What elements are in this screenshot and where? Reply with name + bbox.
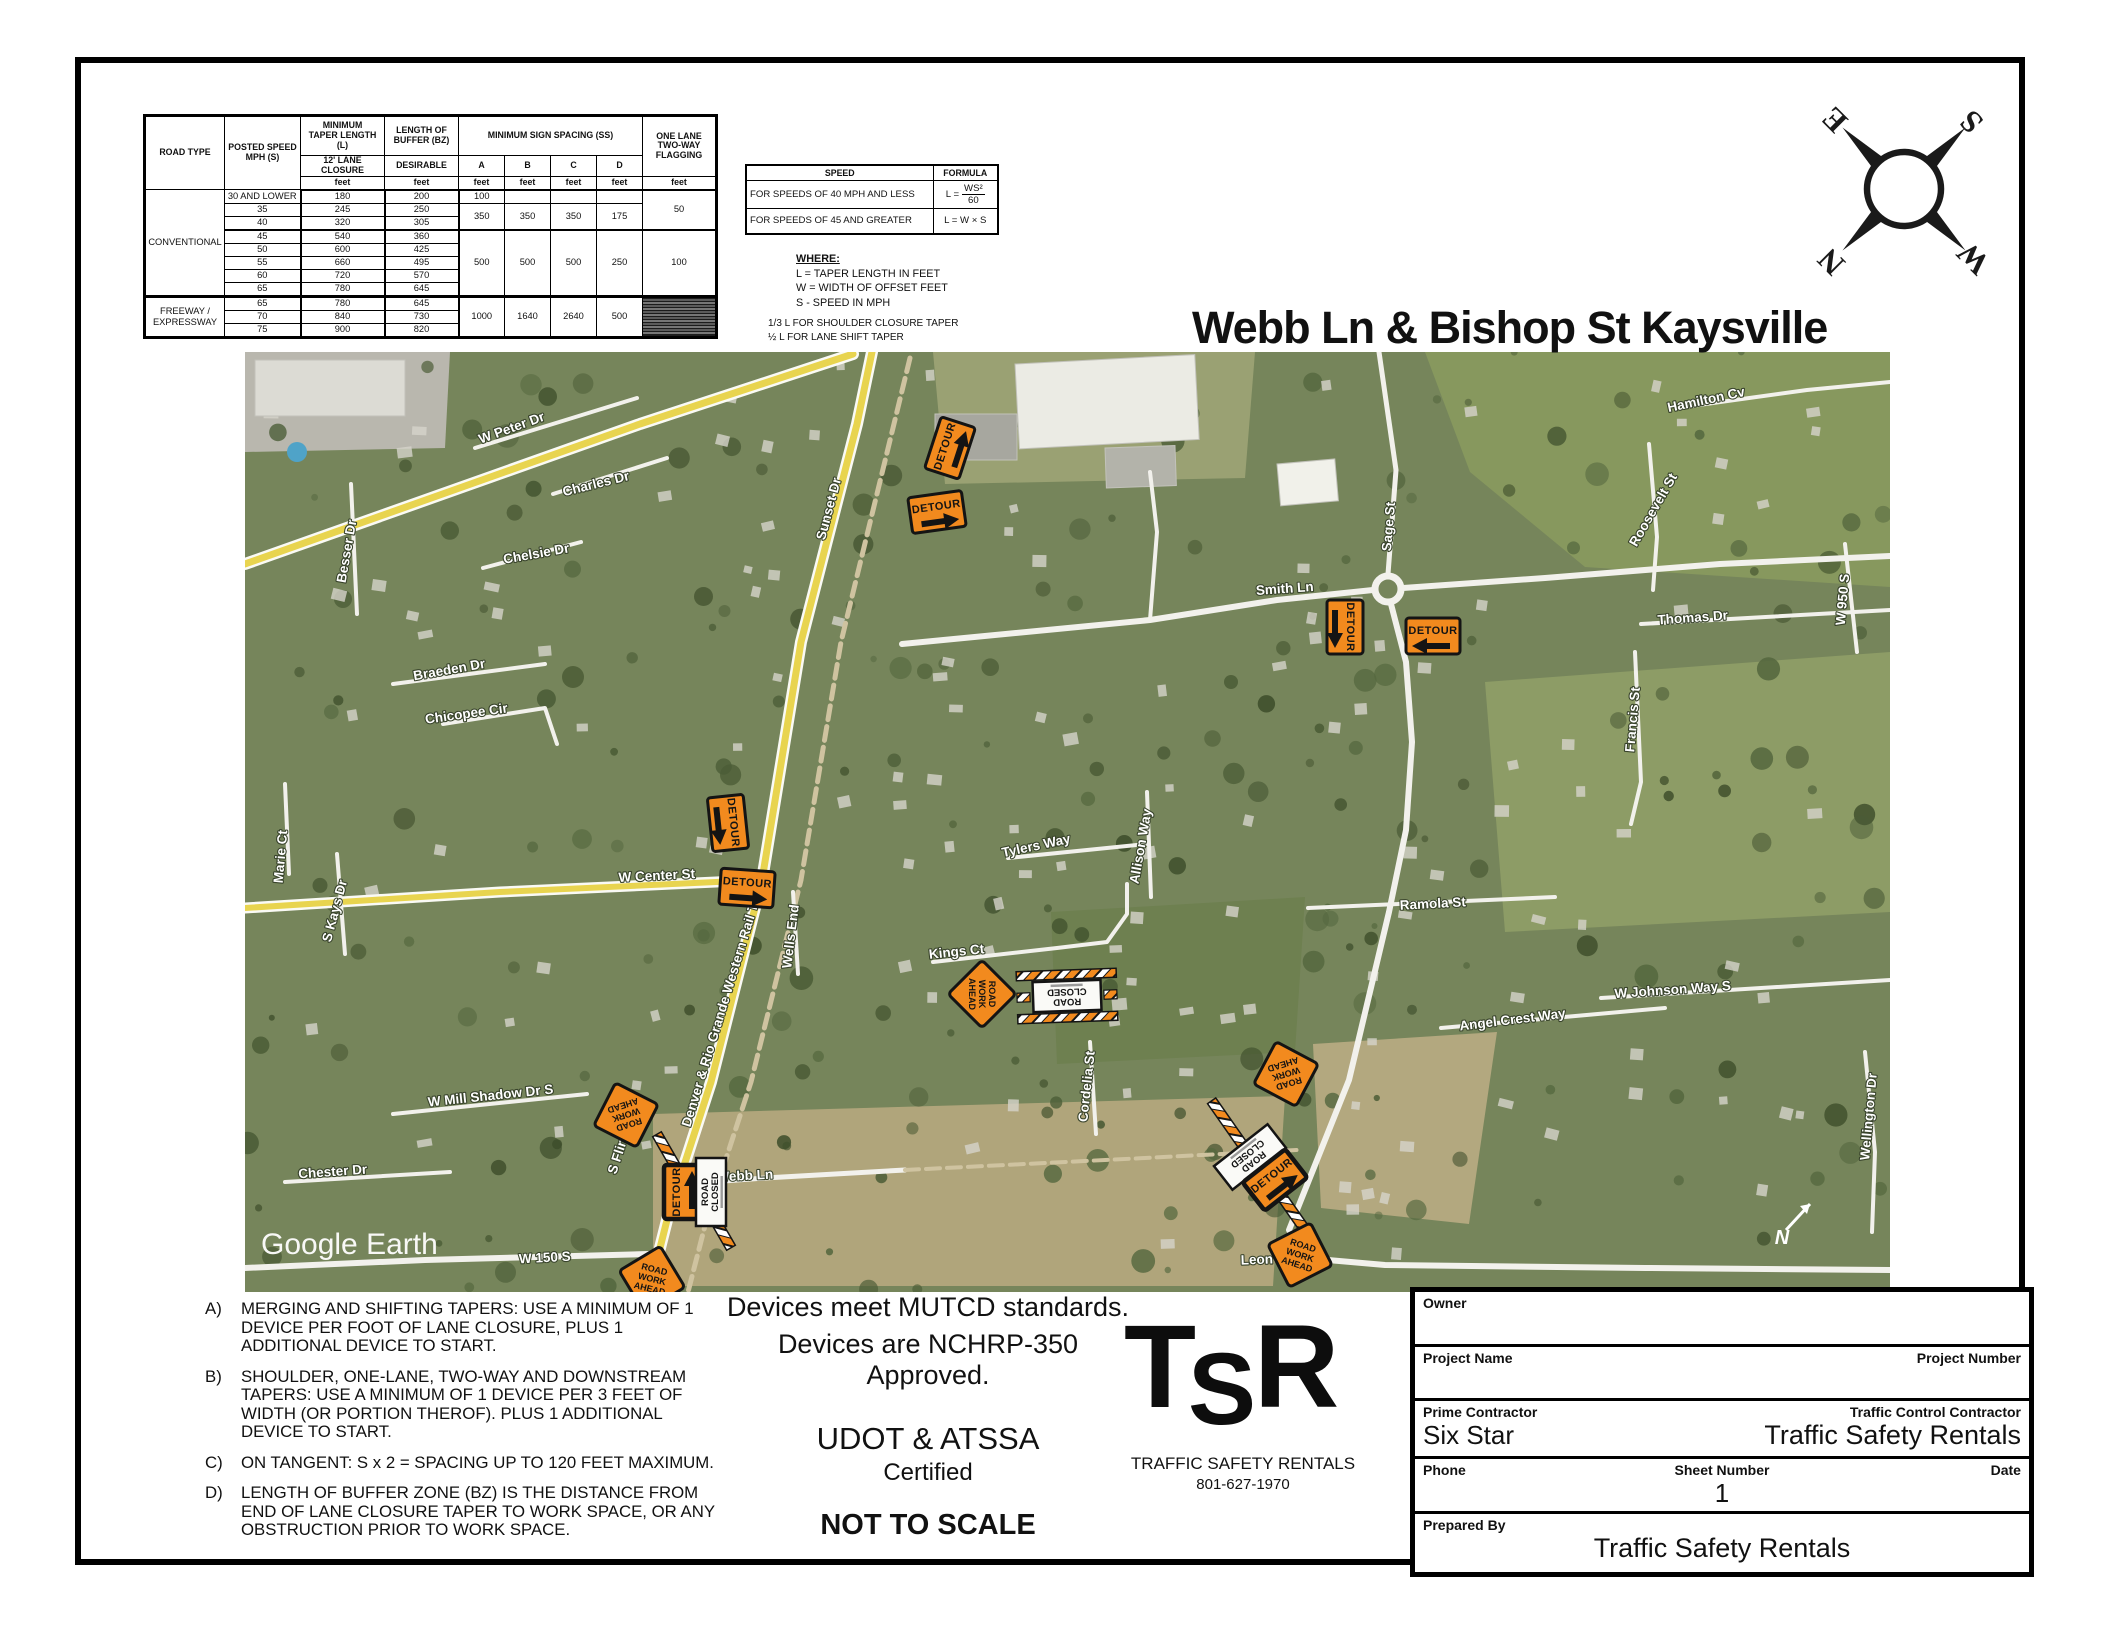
house (1756, 1184, 1768, 1197)
house (837, 795, 851, 809)
tree (875, 1005, 891, 1021)
not-to-scale: NOT TO SCALE (718, 1509, 1138, 1542)
tree (1319, 583, 1328, 592)
taper-cell: 250 (597, 230, 643, 297)
tree (1204, 730, 1221, 747)
tree (491, 1160, 506, 1175)
taper-cell: 720 (301, 269, 385, 282)
tree (909, 1087, 928, 1106)
house (1757, 992, 1770, 1004)
house (1225, 906, 1239, 918)
tree (1458, 779, 1469, 790)
taper-cell: 500 (459, 230, 505, 297)
house (631, 1080, 641, 1090)
taper-cell: 600 (301, 243, 385, 256)
svg-text:DETOUR: DETOUR (1408, 625, 1457, 637)
sign-rc: ROADCLOSED (696, 1158, 726, 1226)
tree (351, 944, 367, 960)
sign-north: N (1775, 1204, 1810, 1249)
formula-numerator: WS² (962, 183, 985, 195)
house (1562, 739, 1575, 750)
tree (1757, 1232, 1771, 1246)
tree (508, 961, 520, 973)
tree (1842, 513, 1860, 531)
taper-cell: 350 (551, 203, 597, 230)
taper-cell: 780 (301, 296, 385, 310)
taper-cell: 100 (459, 190, 505, 204)
google-earth-watermark: Google Earth (261, 1228, 438, 1261)
svg-text:DETOUR: DETOUR (671, 1167, 683, 1216)
house (1578, 920, 1587, 930)
taper-cell: 175 (597, 203, 643, 230)
house (893, 772, 904, 783)
tree (458, 1007, 477, 1026)
house (1806, 407, 1820, 418)
house (434, 844, 447, 856)
tree (399, 460, 412, 473)
date-label: Date (1991, 1462, 2021, 1478)
house (1009, 825, 1019, 834)
house (809, 430, 820, 441)
prepared-by-label: Prepared By (1423, 1517, 2021, 1533)
taper-cell: feet (505, 176, 551, 190)
taper-cell: 12' LANE CLOSURE (301, 156, 385, 177)
taper-cell: 55 (225, 256, 301, 269)
taper-cell (597, 190, 643, 204)
tree (1315, 724, 1325, 734)
tree (698, 929, 710, 941)
road (902, 590, 1373, 644)
tree (1452, 1152, 1467, 1167)
house (1361, 1188, 1375, 1200)
tree (507, 505, 523, 521)
tree (981, 658, 999, 676)
tree (1695, 430, 1705, 440)
house (371, 579, 386, 592)
taper-note: ½ L FOR LANE SHIFT TAPER (768, 331, 958, 345)
tree (887, 754, 901, 768)
note-item: C)ON TANGENT: S x 2 = SPACING UP TO 120 … (205, 1454, 720, 1473)
house (331, 588, 347, 602)
map-area (653, 1096, 1285, 1286)
taper-cell: 35 (225, 203, 301, 216)
page-title: Webb Ln & Bishop St Kaysville (1192, 302, 1827, 354)
tree (1467, 636, 1477, 646)
house (1346, 1204, 1359, 1214)
tree (949, 820, 957, 828)
tree (1090, 762, 1104, 776)
tree (1585, 462, 1609, 486)
house (761, 440, 773, 454)
tree (294, 667, 304, 677)
tree (1157, 746, 1170, 759)
tree (1044, 1165, 1062, 1183)
taper-cell: 350 (459, 203, 505, 230)
map-area (1485, 652, 1890, 932)
tree (610, 748, 618, 756)
sign-detour: DETOUR (719, 868, 775, 908)
house (1498, 1098, 1514, 1110)
taper-cell: 350 (505, 203, 551, 230)
taper-cell: 500 (551, 230, 597, 297)
mutcd-line: Devices meet MUTCD standards. (718, 1292, 1138, 1323)
road (475, 398, 637, 448)
tree (1815, 892, 1826, 903)
tree (1546, 1085, 1556, 1095)
tree (694, 587, 713, 606)
house (1576, 786, 1585, 797)
tree (1354, 669, 1377, 692)
tree (947, 1029, 954, 1036)
tree (1731, 540, 1748, 557)
taper-cell (551, 190, 597, 204)
tree (984, 741, 990, 747)
tree (1372, 923, 1378, 929)
where-line: L = TAPER LENGTH IN FEET (796, 267, 958, 282)
tree (1660, 776, 1669, 785)
sign-detour: DETOUR (908, 490, 966, 533)
taper-cell: feet (301, 176, 385, 190)
title-block-contractor-row: Prime Contractor Six Star Traffic Contro… (1415, 1398, 2029, 1456)
tree (1864, 888, 1885, 909)
tree (772, 1011, 792, 1031)
tree (1305, 907, 1329, 931)
taper-cell: 1640 (505, 296, 551, 337)
tree (1374, 664, 1396, 686)
tree (245, 1132, 259, 1154)
taper-cell: feet (551, 176, 597, 190)
tree (1165, 1267, 1171, 1273)
tree (756, 464, 768, 476)
svg-text:WORK: WORK (977, 980, 987, 1009)
svg-text:CLOSED: CLOSED (1047, 985, 1087, 997)
house (743, 565, 753, 574)
street-label: Chelsie Dr (502, 540, 571, 566)
tree (1374, 1095, 1380, 1101)
house (696, 837, 708, 849)
sheet-number-label: Sheet Number (1622, 1462, 1821, 1478)
title-block-project-row: Project Name Project Number (1415, 1344, 2029, 1398)
house (1464, 406, 1477, 417)
svg-text:DETOUR: DETOUR (1344, 602, 1356, 651)
street-label: Ramola St (1399, 894, 1466, 912)
tree (255, 1204, 262, 1211)
house (1712, 513, 1724, 525)
taper-cell (643, 296, 717, 337)
building (1105, 446, 1176, 488)
street-label: Braeden Dr (412, 656, 487, 684)
note-item: D)LENGTH OF BUFFER ZONE (BZ) IS THE DIST… (205, 1484, 720, 1540)
taper-cell: 100 (643, 230, 717, 297)
tree (252, 1037, 269, 1054)
house (1328, 722, 1341, 734)
tree (840, 767, 849, 776)
title-block-owner-row: Owner (1415, 1292, 2029, 1344)
traffic-control-contractor-value: Traffic Safety Rentals (1764, 1420, 2021, 1451)
house (1179, 1068, 1193, 1076)
tree (709, 1248, 724, 1263)
taper-cell: 540 (301, 230, 385, 244)
building (1277, 459, 1338, 506)
note-text: ON TANGENT: S x 2 = SPACING UP TO 120 FE… (241, 1454, 720, 1473)
house (1719, 1096, 1728, 1105)
tree (1547, 427, 1566, 446)
tsr-letter-r: R (1254, 1308, 1339, 1426)
house (944, 841, 954, 853)
prime-contractor-label: Prime Contractor (1423, 1404, 1537, 1420)
house (1309, 632, 1322, 645)
taper-cell: 40 (225, 216, 301, 230)
tree (1614, 392, 1631, 409)
tree (1011, 1057, 1019, 1065)
taper-cell: 50 (225, 243, 301, 256)
tsr-logo-block: T S R TRAFFIC SAFETY RENTALS 801-627-197… (1118, 1308, 1368, 1493)
house (1617, 829, 1631, 837)
tree (1303, 373, 1322, 392)
tree (890, 657, 912, 679)
svg-text:N: N (1775, 1227, 1790, 1249)
tree (526, 481, 542, 497)
tree (441, 521, 459, 539)
taper-cell: 320 (301, 216, 385, 230)
tree (669, 447, 690, 468)
house (893, 800, 907, 810)
house (1677, 419, 1687, 426)
taper-cell: ONE LANETWO-WAYFLAGGING (643, 116, 717, 177)
cert-org: UDOT & ATSSA (718, 1421, 1138, 1457)
tree (1081, 792, 1095, 806)
formula-row1-speed: FOR SPEEDS OF 40 MPH AND LESS (746, 181, 933, 209)
satellite-map: W Peter DrCharles DrChelsie DrBesser DrB… (245, 352, 1890, 1292)
tsr-logo: T S R (1118, 1308, 1368, 1448)
tree (1712, 771, 1721, 780)
house (772, 673, 782, 682)
formula-lhs: L = (946, 189, 959, 200)
house (1272, 661, 1287, 671)
tree (1752, 833, 1771, 852)
formula-header-speed: SPEED (746, 165, 933, 181)
tree (1306, 759, 1314, 767)
house (1339, 1181, 1352, 1193)
house (761, 520, 775, 531)
tsr-company-name: TRAFFIC SAFETY RENTALS (1118, 1454, 1368, 1474)
tree (709, 624, 716, 631)
tree (1303, 951, 1325, 973)
compass-s: S (1953, 103, 1990, 140)
house (933, 672, 948, 681)
house (484, 582, 500, 593)
tree (333, 695, 343, 705)
map-canvas: W Peter DrCharles DrChelsie DrBesser DrB… (245, 352, 1890, 1292)
tree (480, 604, 489, 613)
house (1008, 1099, 1019, 1111)
taper-cell: 570 (385, 269, 459, 282)
tree (716, 758, 732, 774)
house (1157, 684, 1167, 697)
house (927, 992, 937, 1003)
house (1243, 1004, 1256, 1015)
house (898, 960, 912, 973)
taper-cell: 60 (225, 269, 301, 282)
taper-cell: LENGTH OFBUFFER (BZ) (385, 116, 459, 156)
tree (1534, 1199, 1542, 1207)
house (1544, 1127, 1559, 1140)
taper-cell: 65 (225, 282, 301, 296)
tree (1044, 904, 1052, 912)
sign-detour: DETOUR (707, 794, 748, 851)
tree (464, 1282, 474, 1292)
tree (1669, 1089, 1684, 1104)
taper-cell: 30 AND LOWER (225, 190, 301, 204)
house (1391, 1247, 1402, 1260)
house (1400, 1141, 1415, 1152)
map-area (1313, 1032, 1497, 1224)
tree (777, 1135, 791, 1149)
tree (404, 936, 414, 946)
tree (1850, 816, 1874, 840)
street-label: Charles Dr (561, 468, 632, 499)
tree (773, 696, 785, 708)
house (1628, 1087, 1643, 1100)
house (903, 858, 914, 869)
svg-text:CLOSED: CLOSED (710, 1172, 721, 1212)
house (665, 1066, 678, 1074)
street-label: W Johnson Way S (1614, 978, 1731, 1001)
taper-cell: 1000 (459, 296, 505, 337)
house (751, 586, 762, 598)
street-label: Sage St (1379, 501, 1398, 552)
house (715, 434, 730, 447)
tree (600, 1278, 616, 1292)
speed-formula-table: SPEED FORMULA FOR SPEEDS OF 40 MPH AND L… (745, 164, 999, 235)
formula-row2-formula: L = W × S (933, 209, 998, 234)
tree (1116, 835, 1133, 852)
tree (1406, 493, 1417, 504)
house (1351, 1101, 1360, 1110)
street-label: Chicopee Cir (424, 700, 509, 727)
taper-cell: 660 (301, 256, 385, 269)
tree (331, 1044, 348, 1061)
tree (1786, 746, 1809, 769)
tree (1365, 1170, 1376, 1181)
tree (611, 840, 624, 853)
house (1126, 978, 1137, 986)
tree (1334, 798, 1347, 811)
tree (1407, 1005, 1417, 1015)
title-block-phone-row: Phone Sheet Number 1 Date (1415, 1456, 2029, 1511)
tree (537, 689, 556, 708)
tree (1364, 932, 1378, 946)
tree (1164, 1206, 1178, 1220)
tree (1224, 675, 1238, 689)
house (577, 723, 588, 731)
tree (580, 1071, 590, 1081)
taper-cell: MINIMUM SIGN SPACING (SS) (459, 116, 643, 156)
house (1779, 1106, 1794, 1120)
tree (1751, 747, 1774, 770)
house (1430, 870, 1445, 881)
tree (1213, 1230, 1234, 1251)
taper-cell: B (505, 156, 551, 177)
nchrp-line: Devices are NCHRP-350 Approved. (718, 1329, 1138, 1391)
owner-label: Owner (1423, 1295, 1467, 1311)
taper-cell: C (551, 156, 597, 177)
tree (562, 666, 584, 688)
tree (1188, 540, 1203, 555)
taper-cell: 50 (643, 190, 717, 230)
note-item: B)SHOULDER, ONE-LANE, TWO-WAY AND DOWNST… (205, 1368, 720, 1442)
note-id: A) (205, 1300, 241, 1356)
taper-cell: 245 (301, 203, 385, 216)
tree (684, 1005, 695, 1016)
svg-text:AHEAD: AHEAD (967, 978, 977, 1011)
tree (527, 842, 538, 853)
where-legend: WHERE: L = TAPER LENGTH IN FEET W = WIDT… (768, 252, 958, 345)
tree (1757, 657, 1780, 680)
tree (1052, 918, 1068, 934)
tree (552, 1139, 562, 1149)
taper-cell: feet (643, 176, 717, 190)
taper-cell: 645 (385, 296, 459, 310)
house (1417, 662, 1431, 674)
taper-cell: 70 (225, 310, 301, 323)
house (1004, 527, 1013, 536)
street-label: W 150 S (519, 1249, 571, 1267)
general-notes: A)MERGING AND SHIFTING TAPERS: USE A MIN… (205, 1300, 720, 1552)
tree (1040, 1079, 1049, 1088)
where-line: W = WIDTH OF OFFSET FEET (796, 281, 958, 296)
tree (1346, 943, 1354, 951)
house (492, 607, 504, 620)
taper-cell: 500 (597, 296, 643, 337)
house (1403, 847, 1417, 859)
sign-detour: DETOUR (1406, 618, 1460, 654)
house (1494, 805, 1509, 817)
tree (1036, 582, 1051, 597)
taper-cell: feet (385, 176, 459, 190)
tree (1750, 567, 1759, 576)
house (1165, 784, 1174, 792)
pool (287, 442, 307, 462)
house (1123, 1088, 1132, 1098)
note-id: C) (205, 1454, 241, 1473)
tree (1067, 596, 1083, 612)
tree (1719, 1061, 1737, 1079)
tree (495, 1262, 516, 1283)
taper-cell: D (597, 156, 643, 177)
house (1032, 555, 1046, 567)
tree (1818, 551, 1841, 574)
house (1306, 612, 1317, 625)
house (1130, 912, 1144, 925)
tree (1793, 936, 1805, 948)
house (658, 490, 673, 502)
tsr-letter-t: T (1124, 1308, 1196, 1426)
house (949, 705, 963, 713)
formula-row2-speed: FOR SPEEDS OF 45 AND GREATER (746, 209, 933, 234)
taper-cell: feet (459, 176, 505, 190)
taper-cell: feet (597, 176, 643, 190)
tree (485, 1235, 492, 1242)
tree (1342, 555, 1351, 564)
taper-table: ROAD TYPEPOSTED SPEEDMPH (S)MINIMUMTAPER… (143, 114, 718, 339)
house (347, 709, 358, 721)
taper-cell: 495 (385, 256, 459, 269)
tree (1463, 962, 1470, 969)
tree (1774, 604, 1793, 623)
house (1161, 1239, 1175, 1249)
house (1510, 992, 1525, 1004)
